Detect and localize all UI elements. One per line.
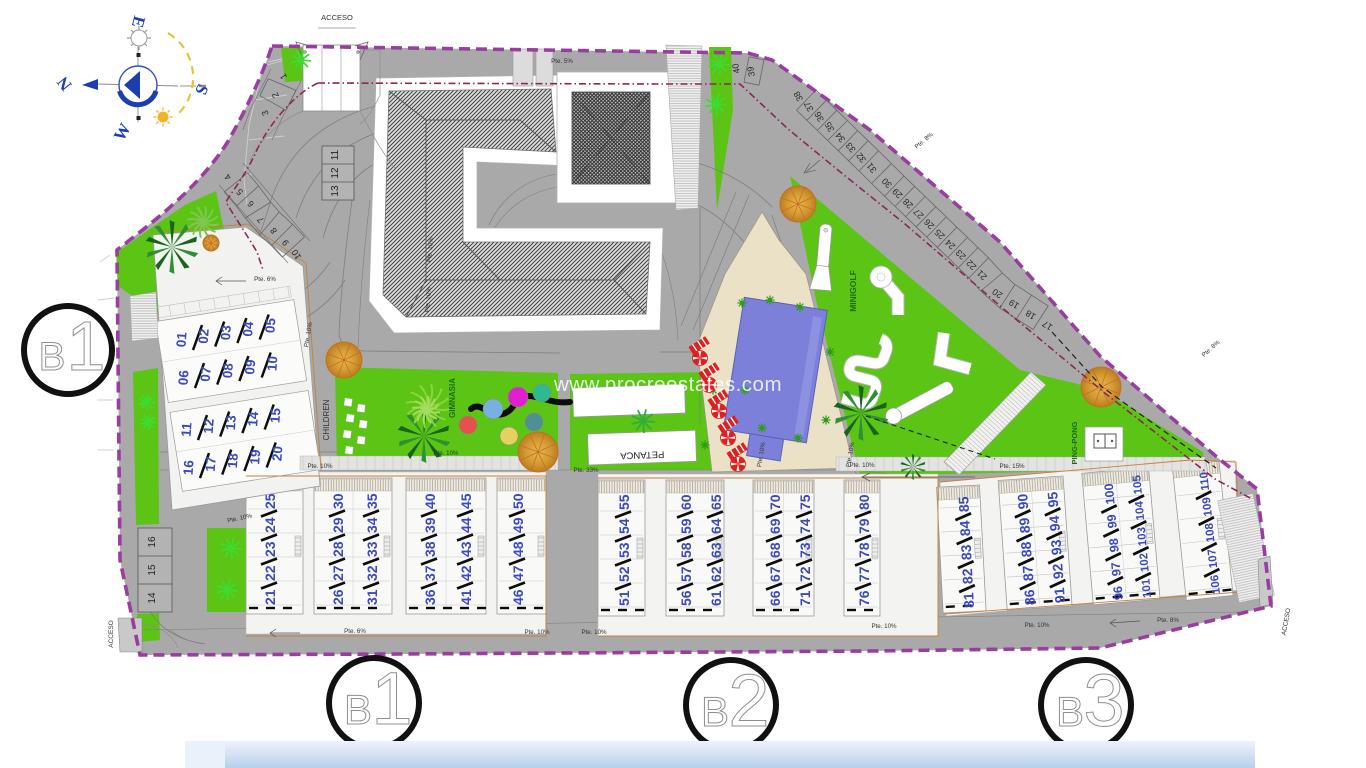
svg-text:63: 63 <box>708 542 724 558</box>
svg-text:ACCESO: ACCESO <box>321 13 353 22</box>
svg-text:84: 84 <box>956 520 973 537</box>
svg-text:55: 55 <box>616 494 632 510</box>
svg-text:25: 25 <box>262 493 278 509</box>
svg-text:52: 52 <box>616 566 632 582</box>
svg-text:20: 20 <box>269 446 285 462</box>
svg-text:107: 107 <box>1206 548 1220 568</box>
svg-text:76: 76 <box>856 590 872 606</box>
svg-text:Pte. 10%: Pte. 10% <box>871 623 897 630</box>
svg-text:79: 79 <box>856 518 872 534</box>
svg-text:45: 45 <box>458 493 474 509</box>
svg-text:56: 56 <box>678 590 694 606</box>
svg-text:19: 19 <box>247 449 263 465</box>
svg-text:www.procreestates.com: www.procreestates.com <box>553 373 782 396</box>
svg-text:11: 11 <box>179 422 195 438</box>
svg-text:73: 73 <box>797 542 813 558</box>
svg-text:24: 24 <box>262 517 278 533</box>
svg-text:94: 94 <box>1046 515 1063 532</box>
svg-text:66: 66 <box>767 590 783 606</box>
svg-text:78: 78 <box>856 542 872 558</box>
svg-text:43: 43 <box>458 541 474 557</box>
svg-text:60: 60 <box>678 494 694 510</box>
svg-text:Pte. 10%: Pte. 10% <box>581 629 607 636</box>
svg-text:3: 3 <box>1083 659 1124 742</box>
svg-text:65: 65 <box>708 494 724 510</box>
svg-text:10: 10 <box>264 356 280 372</box>
svg-text:96: 96 <box>1111 585 1126 600</box>
svg-text:27: 27 <box>330 565 346 581</box>
svg-text:B: B <box>39 335 66 379</box>
svg-text:B: B <box>701 688 729 735</box>
svg-text:CHILDREN: CHILDREN <box>322 399 331 440</box>
svg-text:46: 46 <box>510 589 526 605</box>
svg-text:51: 51 <box>616 590 632 606</box>
svg-text:13: 13 <box>223 414 239 431</box>
svg-text:22: 22 <box>262 565 278 581</box>
svg-text:Pte. 10%: Pte. 10% <box>1024 622 1050 629</box>
svg-text:68: 68 <box>767 542 783 558</box>
svg-text:02: 02 <box>196 328 212 344</box>
svg-text:32: 32 <box>364 565 380 581</box>
svg-text:Pte. 10%: Pte. 10% <box>524 629 550 636</box>
svg-text:GIMNASIA: GIMNASIA <box>448 378 457 418</box>
svg-text:Pte. 15%: Pte. 15% <box>999 463 1025 470</box>
svg-text:98: 98 <box>1107 538 1122 553</box>
svg-text:74: 74 <box>797 518 813 534</box>
svg-text:103: 103 <box>1136 526 1150 546</box>
svg-text:16: 16 <box>181 459 197 476</box>
svg-text:01: 01 <box>174 331 190 348</box>
svg-text:109: 109 <box>1201 497 1215 517</box>
svg-text:36: 36 <box>422 589 438 605</box>
svg-text:53: 53 <box>616 542 632 558</box>
svg-text:41: 41 <box>458 589 474 605</box>
svg-text:39: 39 <box>422 517 438 533</box>
svg-text:Pte. 6%: Pte. 6% <box>254 276 276 283</box>
svg-text:50: 50 <box>510 493 526 509</box>
svg-text:38: 38 <box>422 541 438 557</box>
svg-text:05: 05 <box>262 317 278 334</box>
svg-text:33: 33 <box>364 541 380 557</box>
svg-text:15: 15 <box>147 564 158 576</box>
svg-text:13: 13 <box>330 185 341 197</box>
svg-text:30: 30 <box>330 493 346 509</box>
svg-text:44: 44 <box>458 517 474 533</box>
svg-text:Pte. 5%: Pte. 5% <box>551 58 573 65</box>
svg-text:104: 104 <box>1133 500 1147 521</box>
svg-text:29: 29 <box>330 517 346 533</box>
svg-text:48: 48 <box>510 541 526 557</box>
svg-text:ACCESO: ACCESO <box>108 620 115 647</box>
svg-text:97: 97 <box>1109 562 1124 577</box>
svg-text:70: 70 <box>767 494 783 510</box>
svg-text:06: 06 <box>176 369 192 386</box>
svg-text:Pte. 10%: Pte. 10% <box>849 462 875 469</box>
svg-text:14: 14 <box>147 592 158 604</box>
svg-text:12: 12 <box>330 167 341 179</box>
svg-text:28: 28 <box>330 541 346 557</box>
svg-text:47: 47 <box>510 565 526 581</box>
svg-text:80: 80 <box>856 494 872 510</box>
svg-text:09: 09 <box>242 359 258 375</box>
svg-text:17: 17 <box>203 456 219 472</box>
svg-text:99: 99 <box>1105 514 1120 529</box>
svg-text:87: 87 <box>1019 565 1036 582</box>
svg-text:16: 16 <box>147 536 158 548</box>
svg-text:101: 101 <box>1140 578 1154 599</box>
svg-text:93: 93 <box>1048 539 1065 556</box>
svg-text:03: 03 <box>218 324 234 341</box>
svg-text:61: 61 <box>708 590 724 606</box>
svg-text:62: 62 <box>708 566 724 582</box>
svg-text:102: 102 <box>1138 552 1152 572</box>
svg-text:04: 04 <box>240 321 256 338</box>
svg-text:42: 42 <box>458 565 474 581</box>
svg-text:08: 08 <box>220 362 236 379</box>
svg-text:PING-PONG: PING-PONG <box>1070 421 1079 464</box>
svg-text:75: 75 <box>797 494 813 510</box>
svg-text:89: 89 <box>1016 517 1033 534</box>
svg-text:72: 72 <box>797 566 813 582</box>
svg-text:91: 91 <box>1051 587 1068 604</box>
svg-text:23: 23 <box>262 541 278 557</box>
svg-text:MINIGOLF: MINIGOLF <box>848 270 858 312</box>
svg-text:82: 82 <box>959 568 976 585</box>
svg-text:1: 1 <box>371 657 412 740</box>
svg-text:31: 31 <box>364 589 380 605</box>
svg-text:Pte. 33%: Pte. 33% <box>573 467 599 474</box>
svg-text:Pte. 6%: Pte. 6% <box>344 628 366 635</box>
svg-text:PETANCA: PETANCA <box>619 448 664 461</box>
svg-text:07: 07 <box>198 366 214 382</box>
svg-text:Pte. 10%: Pte. 10% <box>307 463 333 470</box>
svg-text:18: 18 <box>225 452 241 469</box>
svg-text:81: 81 <box>960 592 977 609</box>
svg-text:1: 1 <box>67 307 106 385</box>
svg-text:34: 34 <box>364 517 380 533</box>
svg-text:Pte. 10%: Pte. 10% <box>433 450 459 457</box>
svg-text:40: 40 <box>730 63 742 75</box>
svg-text:15: 15 <box>267 407 283 424</box>
svg-text:86: 86 <box>1021 589 1038 606</box>
svg-text:106: 106 <box>1209 574 1223 594</box>
svg-text:83: 83 <box>958 544 975 561</box>
svg-text:37: 37 <box>422 565 438 581</box>
svg-text:67: 67 <box>767 566 783 582</box>
svg-text:92: 92 <box>1049 563 1066 580</box>
svg-text:100: 100 <box>1102 483 1118 505</box>
svg-text:71: 71 <box>797 590 813 606</box>
svg-text:35: 35 <box>364 493 380 509</box>
svg-text:58: 58 <box>678 542 694 558</box>
svg-text:108: 108 <box>1204 522 1218 543</box>
svg-text:Pte. 8%: Pte. 8% <box>1157 617 1179 624</box>
svg-text:49: 49 <box>510 517 526 533</box>
svg-text:40: 40 <box>422 493 438 509</box>
svg-text:2: 2 <box>728 659 769 742</box>
svg-text:26: 26 <box>330 589 346 605</box>
svg-text:88: 88 <box>1018 541 1035 558</box>
svg-text:59: 59 <box>678 518 694 534</box>
svg-text:54: 54 <box>616 518 632 534</box>
svg-text:85: 85 <box>955 496 972 513</box>
svg-text:90: 90 <box>1014 493 1031 510</box>
svg-text:21: 21 <box>262 589 278 605</box>
svg-text:B: B <box>1056 688 1084 735</box>
svg-text:95: 95 <box>1044 491 1061 508</box>
svg-text:77: 77 <box>856 566 872 582</box>
svg-text:105: 105 <box>1131 474 1145 495</box>
svg-text:14: 14 <box>245 411 261 428</box>
svg-text:11: 11 <box>330 149 341 160</box>
svg-text:B: B <box>344 686 372 733</box>
svg-text:12: 12 <box>201 418 217 434</box>
svg-text:57: 57 <box>678 566 694 582</box>
svg-text:69: 69 <box>767 518 783 534</box>
svg-text:64: 64 <box>708 518 724 534</box>
